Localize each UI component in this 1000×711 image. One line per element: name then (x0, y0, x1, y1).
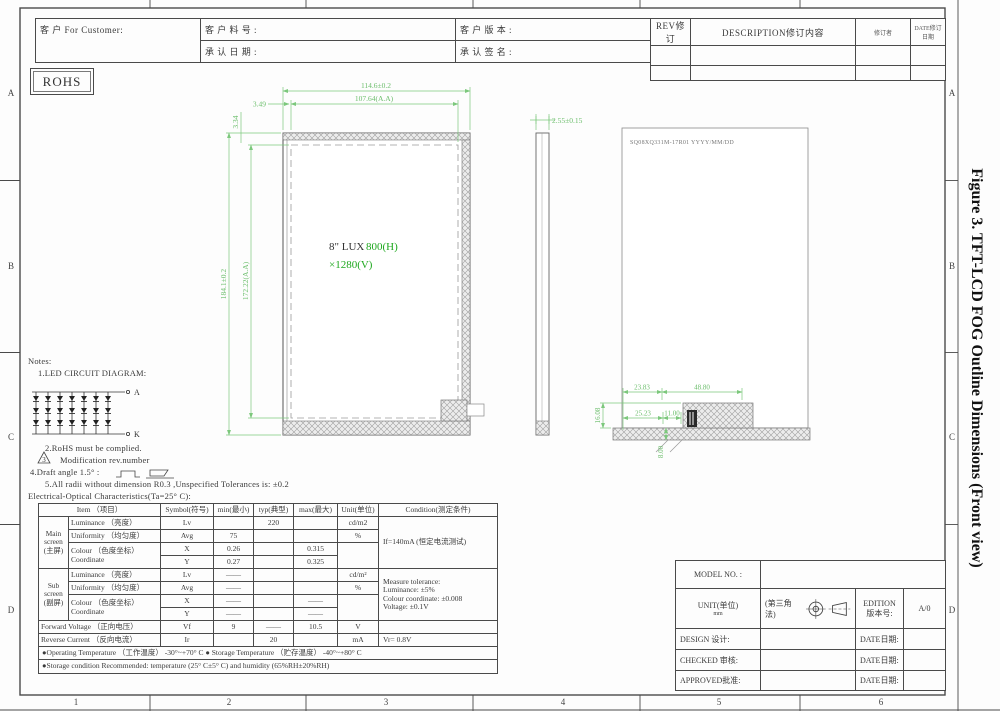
eo-symbol: Vf (161, 621, 214, 634)
dim-block-height: 16.08 (594, 407, 602, 423)
eo-unit: cd/m2 (338, 517, 379, 530)
drawing-sheet: 8" LUX 800(H) ×1280(V) 114.6±0.2 107.64(… (0, 0, 1000, 711)
eo-symbol: X (161, 595, 214, 608)
approved-label: APPROVED批准: (676, 671, 761, 691)
unit-cell: UNIT(单位) mm (676, 589, 761, 629)
revised-date-label-cell: DATE修订日期 (911, 19, 946, 46)
approved-date-label: DATE日期: (856, 671, 904, 691)
eo-storage-row: ●Storage condition Recommended: temperat… (39, 660, 498, 674)
blank-cell (856, 46, 911, 66)
eo-unit: mA (338, 634, 379, 647)
blank-cell (294, 569, 338, 582)
blank-cell (254, 582, 294, 595)
blank-cell (338, 543, 379, 569)
dim-active-width: 107.64(A.A) (355, 94, 394, 103)
eo-condition-sub: Measure tolerance: Luminance: ±5% Colour… (379, 569, 498, 621)
eo-unit: V (338, 621, 379, 634)
note-4-draft-angle: 4.Draft angle 1.5° : (30, 467, 99, 477)
rev-label-cell: REV修订 (651, 19, 691, 46)
dim-outline-width: 114.6±0.2 (361, 81, 391, 90)
design-date-label: DATE日期: (856, 629, 904, 650)
front-bottom-bezel (283, 421, 470, 435)
eo-symbol: Y (161, 608, 214, 621)
approval-sign-label-cell: 承 认 签 名 : (456, 41, 651, 63)
part-no-label-cell: 客 户 料 号 : (201, 19, 456, 41)
dim-active-height: 172.22(A.A) (241, 261, 250, 300)
blank-cell (294, 530, 338, 543)
grid-row-b-right: B (945, 261, 959, 271)
note-1-led-diagram: 1.LED CIRCUIT DIAGRAM: (38, 368, 146, 378)
description-label-cell: DESCRIPTION修订内容 (691, 19, 856, 46)
blank-cell (254, 608, 294, 621)
blank-cell (294, 517, 338, 530)
eo-max: 0.325 (294, 556, 338, 569)
note-3-modification: Modification rev.number (60, 455, 150, 465)
dim-fpc-offset: 25.23 (635, 410, 651, 418)
panel-resolution-h: 800(H) (366, 241, 398, 253)
note-2-rohs: 2.RoHS must be complied. (45, 443, 142, 453)
grid-row-d-right: D (945, 605, 959, 615)
eo-symbol: Avg (161, 530, 214, 543)
rohs-label: ROHS (33, 71, 91, 92)
eo-header-min: min(最小) (214, 504, 254, 517)
approval-date-label-cell: 承 认 日 期 : (201, 41, 456, 63)
eo-header-condition: Condition(测定条件) (379, 504, 498, 517)
blank-cell (691, 66, 856, 81)
eo-symbol: Avg (161, 582, 214, 595)
blank-cell (691, 46, 856, 66)
main-screen-group: Main screen (主屏) (39, 517, 69, 569)
blank-cell (214, 634, 254, 647)
unit-label: UNIT(单位) (698, 601, 738, 610)
dim-edge-offset-y: 3.34 (231, 115, 240, 128)
revision-triangle-icon: 3 (38, 452, 50, 464)
eo-max: —— (294, 608, 338, 621)
dim-thickness: 2.55±0.15 (552, 116, 583, 125)
blank-cell (338, 595, 379, 621)
eo-unit: % (338, 530, 379, 543)
front-connector-tab (467, 404, 484, 416)
eo-min: 0.27 (214, 556, 254, 569)
eo-item: Uniformity （均匀度） (69, 582, 161, 595)
eo-min: —— (214, 608, 254, 621)
eo-symbol: Ir (161, 634, 214, 647)
blank-cell (856, 66, 911, 81)
eo-typ: 220 (254, 517, 294, 530)
eo-symbol: Y (161, 556, 214, 569)
grid-col-3: 3 (379, 697, 393, 707)
eo-item: Uniformity （均匀度） (69, 530, 161, 543)
blank-cell (911, 66, 946, 81)
eo-max: 0.315 (294, 543, 338, 556)
model-no-label: MODEL NO. : (676, 561, 761, 589)
connector-socket (687, 410, 697, 427)
eo-item-colour: Colour （色度坐标） Coordinate (69, 543, 161, 569)
draft-angle-icons (116, 470, 174, 478)
rohs-badge: ROHS (30, 68, 94, 95)
led-circuit-diagram: A K (32, 388, 140, 439)
blank-cell (294, 634, 338, 647)
third-angle-label: (第三角法) (765, 598, 802, 620)
panel-size-label: 8" LUX (329, 241, 364, 253)
eo-symbol: Lv (161, 517, 214, 530)
grid-row-c-right: C (945, 432, 959, 442)
checked-value (761, 650, 856, 671)
blank-cell (651, 66, 691, 81)
blank-cell (294, 582, 338, 595)
blank-cell (254, 556, 294, 569)
customer-label-cell: 客 户 For Customer: (36, 19, 201, 63)
eo-condition-main: If=140mA (恒定电流测试) (379, 517, 498, 569)
bottom-edge-bar (613, 428, 810, 440)
eo-max: —— (294, 595, 338, 608)
panel-resolution-v: ×1280(V) (329, 259, 373, 271)
grid-col-6: 6 (874, 697, 888, 707)
back-view-model-label: SQ08XQ331M-17R01 YYYY/MM/DD (630, 140, 734, 146)
eo-header-typ: typ(典型) (254, 504, 294, 517)
grid-row-c-left: C (4, 432, 18, 442)
eo-item: Luminance （亮度） (69, 569, 161, 582)
grid-row-d-left: D (4, 605, 18, 615)
front-view: 8" LUX 800(H) ×1280(V) (283, 133, 484, 435)
eo-temperature-row: ●Operating Temperature （工作温度） -30°~+70° … (39, 647, 498, 660)
dim-fpc-width: 11.00 (664, 410, 680, 418)
eo-header-unit: Unit(单位) (338, 504, 379, 517)
eo-max: 10.5 (294, 621, 338, 634)
eo-table-title: Electrical-Optical Characteristics(Ta=25… (28, 491, 191, 501)
checked-date-label: DATE日期: (856, 650, 904, 671)
edition-value: A/0 (904, 589, 946, 629)
notes-title: Notes: (28, 356, 51, 366)
dim-edge-offset-x: 3.49 (253, 100, 266, 109)
blank-cell (254, 569, 294, 582)
eo-item: Luminance （亮度） (69, 517, 161, 530)
eo-min: 75 (214, 530, 254, 543)
eo-symbol: Lv (161, 569, 214, 582)
eo-min: —— (214, 582, 254, 595)
eo-min: —— (214, 595, 254, 608)
note-5-tolerances: 5.All radii without dimension R0.3 ,Unsp… (45, 479, 289, 489)
grid-row-a-left: A (4, 88, 18, 98)
back-view: SQ08XQ331M-17R01 YYYY/MM/DD (613, 128, 810, 452)
dim-conn-offset: 23.83 (634, 384, 650, 392)
title-block: MODEL NO. : UNIT(单位) mm (第三角法) (675, 560, 946, 691)
blank-cell (651, 46, 691, 66)
grid-col-4: 4 (556, 697, 570, 707)
design-date-value (904, 629, 946, 650)
dim-outline-height: 184.1±0.2 (219, 269, 228, 300)
third-angle-projection-icon (806, 599, 851, 619)
figure-caption: Figure 3. TFT-LCD FOG Outline Dimensions… (969, 153, 985, 583)
approved-date-value (904, 671, 946, 691)
eo-header-symbol: Symbol(符号) (161, 504, 214, 517)
grid-col-5: 5 (712, 697, 726, 707)
eo-header-max: max(最大) (294, 504, 338, 517)
eo-characteristics-table: Item （项目） Symbol(符号) min(最小) typ(典型) max… (38, 503, 498, 674)
front-right-bezel (462, 140, 470, 421)
unit-value: mm (680, 611, 756, 617)
anode-terminal-label: A (134, 388, 140, 397)
blank-cell (911, 46, 946, 66)
eo-typ: 20 (254, 634, 294, 647)
cathode-terminal-label: K (134, 430, 140, 439)
grid-row-a-right: A (945, 88, 959, 98)
revision-header-table: REV修订 DESCRIPTION修订内容 修订者 DATE修订日期 (650, 18, 946, 81)
customer-header-table: 客 户 For Customer: 客 户 料 号 : 客 户 版 本 : 承 … (35, 18, 651, 63)
dim-bar-height: 8.00 (657, 445, 665, 458)
blank-cell (254, 543, 294, 556)
model-no-value (761, 561, 946, 589)
eo-header-item: Item （项目） (39, 504, 161, 517)
front-top-bezel (283, 133, 470, 140)
approved-value (761, 671, 856, 691)
grid-col-2: 2 (222, 697, 236, 707)
grid-col-1: 1 (69, 697, 83, 707)
eo-typ: —— (254, 621, 294, 634)
eo-condition-reverse: Vr= 0.8V (379, 634, 498, 647)
eo-unit: cd/m² (338, 569, 379, 582)
design-label: DESIGN 设计: (676, 629, 761, 650)
eo-item: Reverse Current （反向电流） (39, 634, 161, 647)
eo-item-colour: Colour （色度坐标） Coordinate (69, 595, 161, 621)
side-view (536, 133, 549, 435)
revision-number: 3 (42, 456, 46, 464)
customer-version-label-cell: 客 户 版 本 : (456, 19, 651, 41)
design-value (761, 629, 856, 650)
eo-unit: % (338, 582, 379, 595)
edition-label: EDITION 版本号: (856, 589, 904, 629)
eo-symbol: X (161, 543, 214, 556)
blank-cell (254, 595, 294, 608)
front-connector-block (441, 400, 467, 421)
dim-conn-width: 48.80 (694, 384, 710, 392)
checked-label: CHECKED 审核: (676, 650, 761, 671)
blank-cell (254, 530, 294, 543)
blank-cell (379, 621, 498, 634)
eo-item: Forward Voltage （正向电压） (39, 621, 161, 634)
eo-min: —— (214, 569, 254, 582)
eo-min: 0.26 (214, 543, 254, 556)
blank-cell (214, 517, 254, 530)
grid-row-b-left: B (4, 261, 18, 271)
sub-screen-group: Sub screen (副屏) (39, 569, 69, 621)
eo-min: 9 (214, 621, 254, 634)
checked-date-value (904, 650, 946, 671)
projection-cell: (第三角法) (761, 589, 856, 629)
revised-by-label-cell: 修订者 (856, 19, 911, 46)
